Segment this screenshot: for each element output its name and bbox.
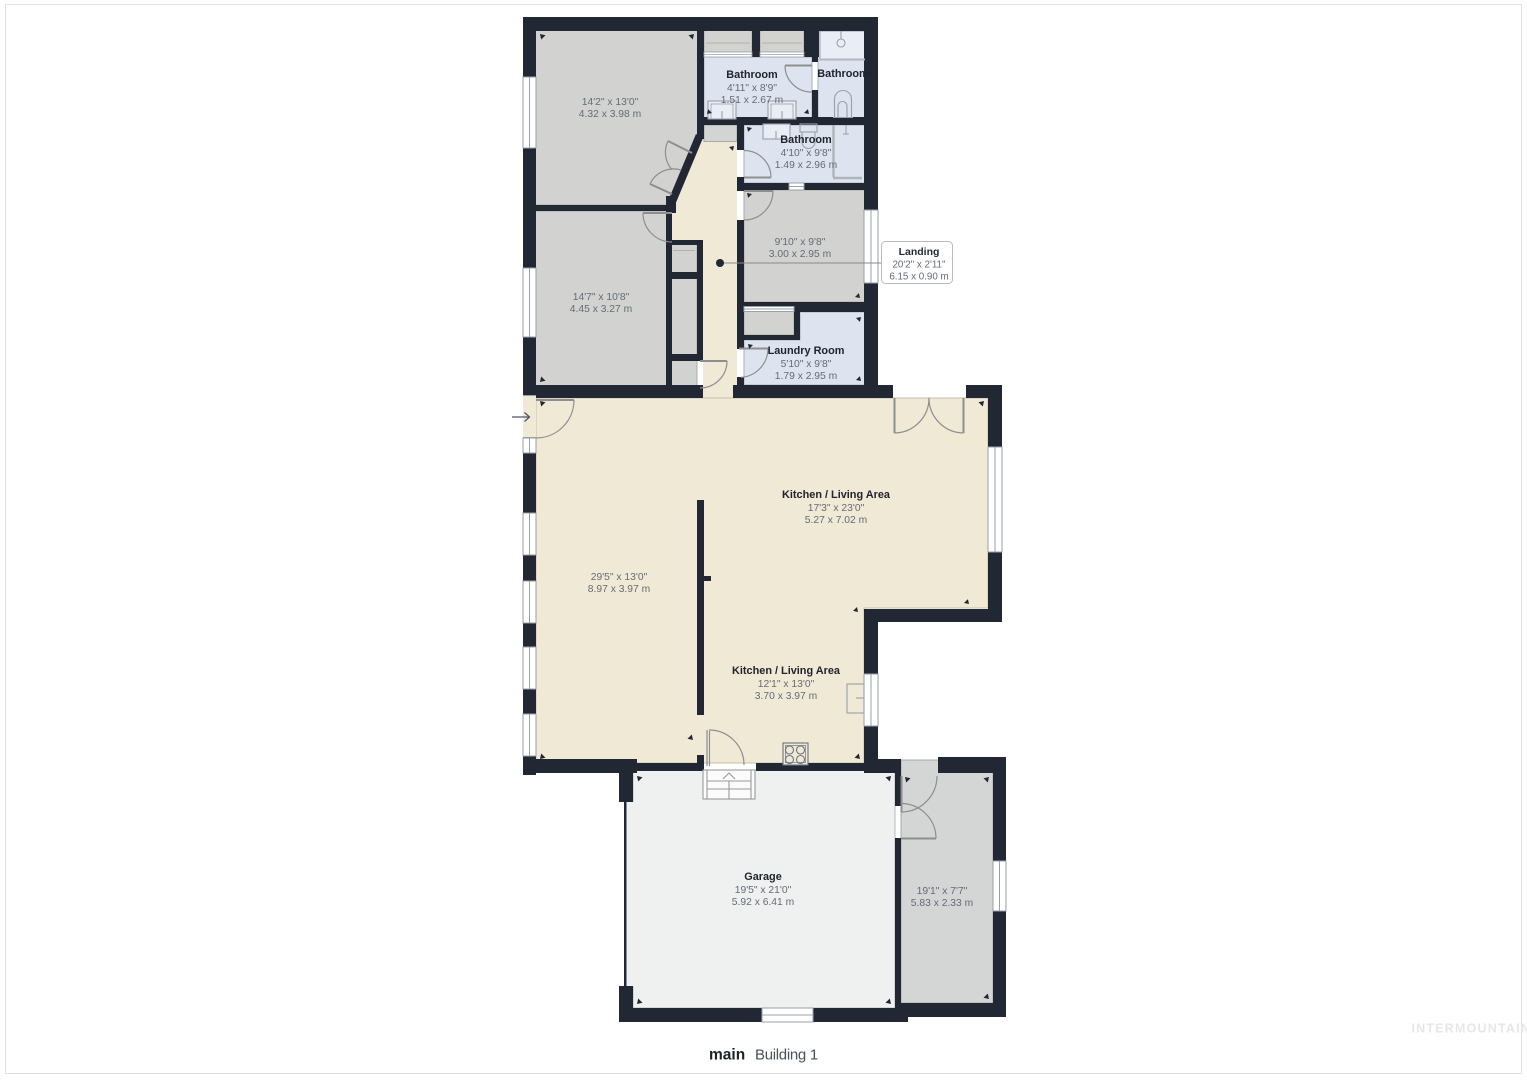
- svg-text:main: main: [709, 1047, 745, 1064]
- svg-text:Bathroom: Bathroom: [780, 134, 832, 146]
- svg-text:5'10" x 9'8": 5'10" x 9'8": [781, 359, 832, 370]
- svg-text:1.79 x 2.95 m: 1.79 x 2.95 m: [775, 371, 837, 382]
- svg-text:20'2" x 2'11": 20'2" x 2'11": [892, 260, 946, 271]
- svg-text:19'1" x 7'7": 19'1" x 7'7": [917, 886, 968, 897]
- svg-text:4'10" x 9'8": 4'10" x 9'8": [781, 148, 832, 159]
- svg-text:9'10" x 9'8": 9'10" x 9'8": [775, 237, 826, 248]
- svg-text:4'11" x 8'9": 4'11" x 8'9": [727, 83, 777, 94]
- svg-text:8.97 x 3.97 m: 8.97 x 3.97 m: [588, 584, 650, 595]
- svg-text:Building 1: Building 1: [755, 1047, 818, 1064]
- svg-text:6.15 x 0.90 m: 6.15 x 0.90 m: [889, 272, 948, 283]
- svg-text:5.27 x 7.02 m: 5.27 x 7.02 m: [805, 515, 867, 526]
- svg-text:12'1" x 13'0": 12'1" x 13'0": [758, 679, 815, 690]
- svg-text:Garage: Garage: [744, 871, 782, 883]
- svg-text:19'5" x 21'0": 19'5" x 21'0": [735, 885, 792, 896]
- svg-text:29'5" x 13'0": 29'5" x 13'0": [591, 572, 648, 583]
- svg-text:Bathroom: Bathroom: [726, 69, 778, 81]
- svg-text:4.32 x 3.98 m: 4.32 x 3.98 m: [579, 109, 641, 120]
- svg-text:Kitchen / Living Area: Kitchen / Living Area: [782, 489, 891, 501]
- svg-text:1.51 x 2.67 m: 1.51 x 2.67 m: [721, 95, 783, 106]
- svg-text:5.83 x 2.33 m: 5.83 x 2.33 m: [911, 898, 973, 909]
- svg-text:4.45 x 3.27 m: 4.45 x 3.27 m: [570, 304, 632, 315]
- svg-text:3.00 x 2.95 m: 3.00 x 2.95 m: [769, 249, 831, 260]
- svg-text:14'2" x 13'0": 14'2" x 13'0": [582, 97, 639, 108]
- svg-text:1.49 x 2.96 m: 1.49 x 2.96 m: [775, 160, 837, 171]
- svg-text:INTERMOUNTAIN: INTERMOUNTAIN: [1411, 1022, 1527, 1036]
- svg-text:17'3" x 23'0": 17'3" x 23'0": [808, 503, 865, 514]
- svg-text:3.70 x 3.97 m: 3.70 x 3.97 m: [755, 691, 817, 702]
- svg-text:Laundry Room: Laundry Room: [768, 345, 845, 357]
- svg-text:Bathroom: Bathroom: [817, 68, 869, 80]
- svg-text:14'7" x 10'8": 14'7" x 10'8": [573, 292, 630, 303]
- svg-text:Landing: Landing: [899, 246, 940, 258]
- svg-text:5.92 x 6.41 m: 5.92 x 6.41 m: [732, 897, 794, 908]
- svg-text:Kitchen / Living Area: Kitchen / Living Area: [732, 665, 841, 677]
